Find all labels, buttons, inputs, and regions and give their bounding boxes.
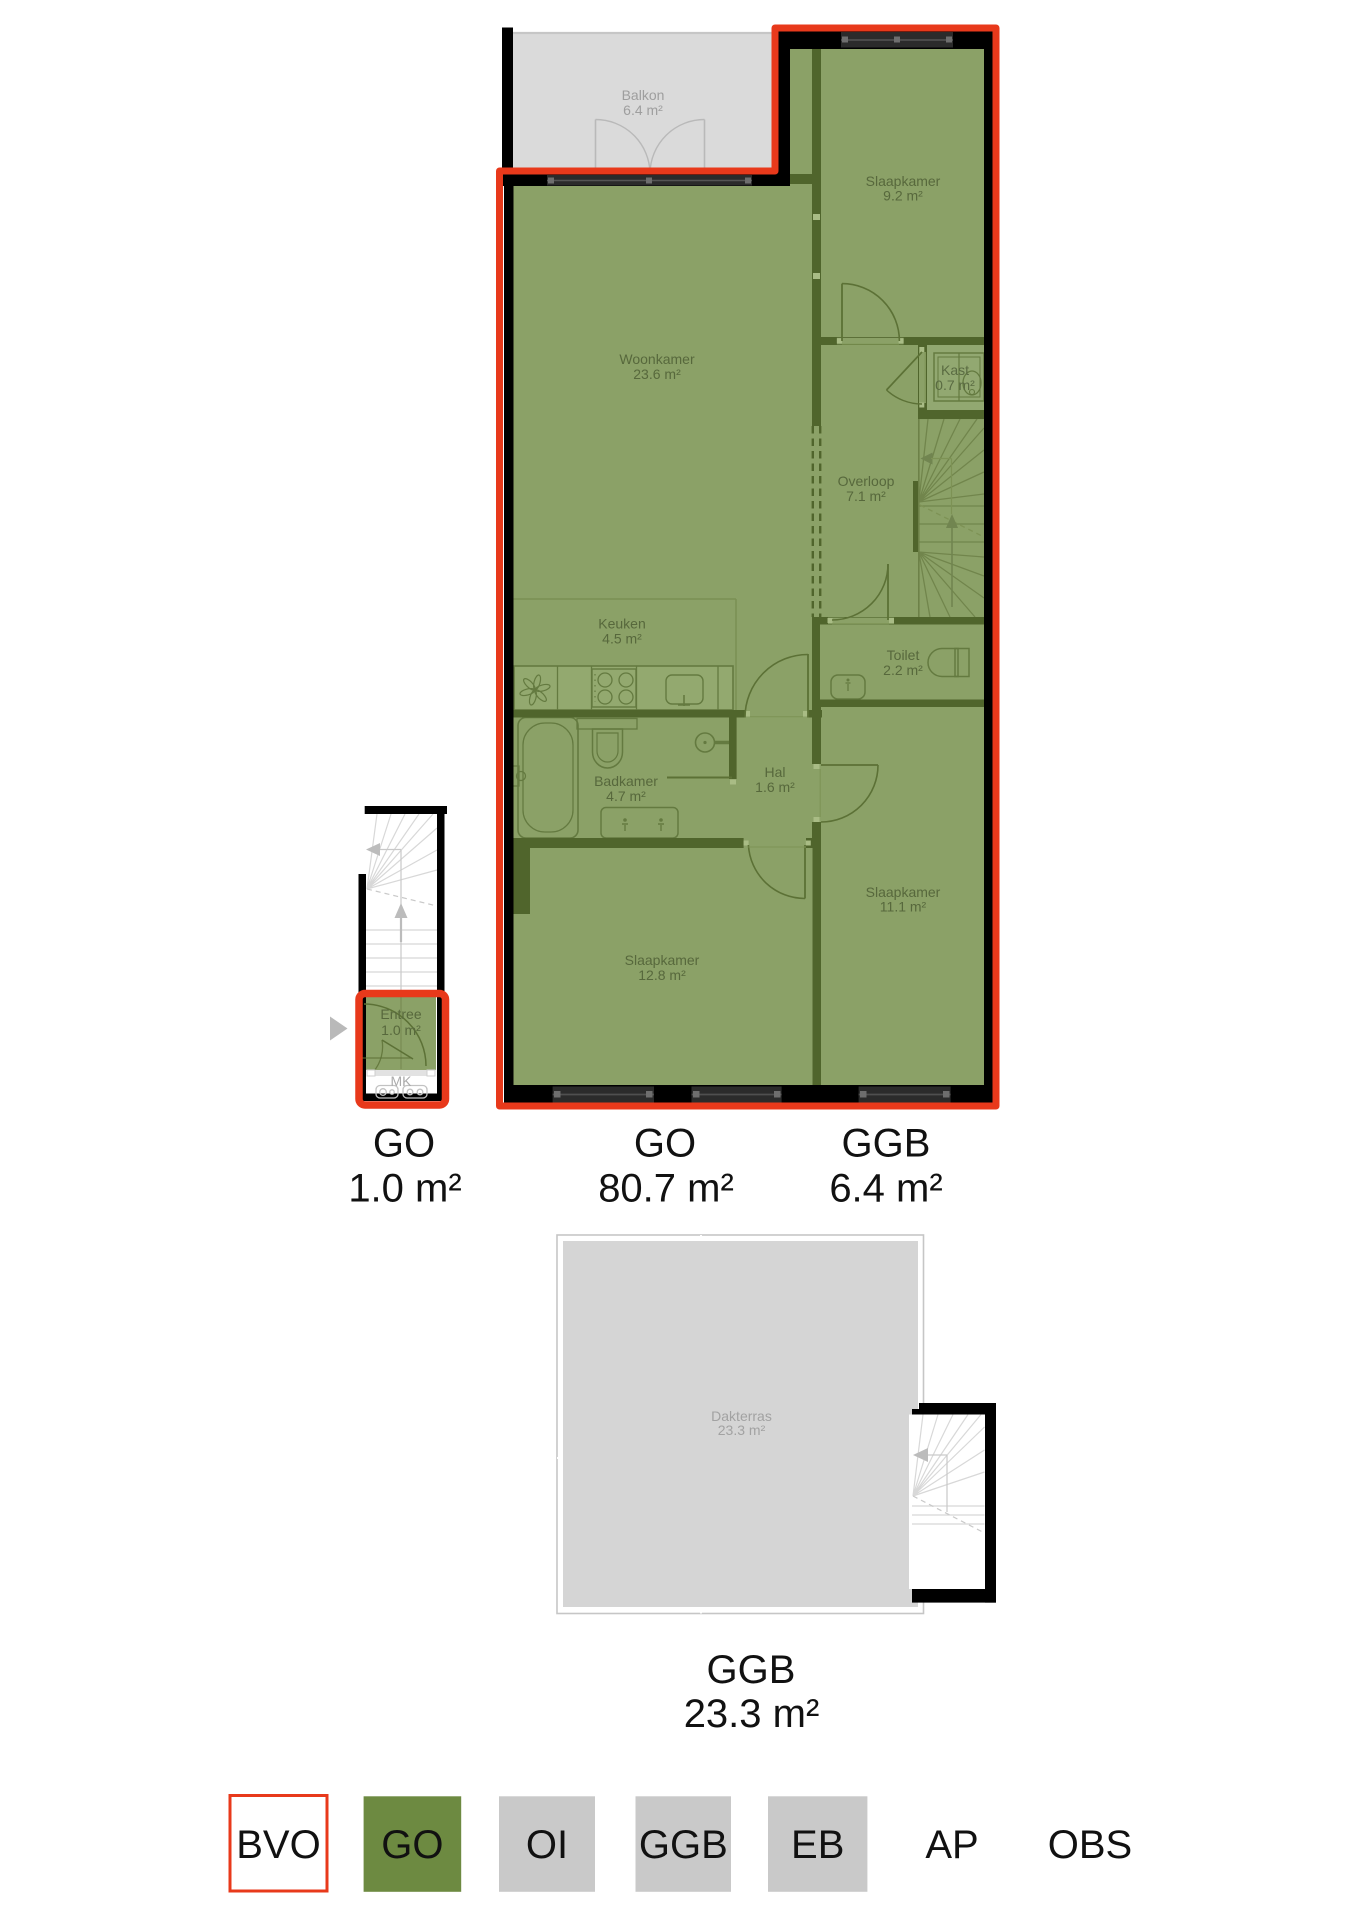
svg-text:1.6 m²: 1.6 m²	[755, 779, 795, 795]
svg-text:GO: GO	[373, 1122, 435, 1166]
svg-text:9.2 m²: 9.2 m²	[883, 188, 923, 204]
svg-text:6.4 m²: 6.4 m²	[829, 1167, 942, 1211]
svg-text:23.6 m²: 23.6 m²	[633, 366, 681, 382]
svg-text:Hal: Hal	[764, 764, 785, 780]
svg-text:GGB: GGB	[707, 1648, 796, 1692]
svg-text:GO: GO	[381, 1823, 443, 1867]
svg-text:12.8 m²: 12.8 m²	[638, 967, 686, 983]
svg-text:0.7 m²: 0.7 m²	[935, 377, 975, 393]
svg-text:Balkon: Balkon	[622, 87, 665, 103]
svg-text:OI: OI	[526, 1823, 568, 1867]
svg-text:EB: EB	[791, 1823, 844, 1867]
svg-text:23.3 m²: 23.3 m²	[718, 1422, 766, 1438]
svg-text:BVO: BVO	[236, 1823, 320, 1867]
svg-text:Entree: Entree	[380, 1006, 421, 1022]
svg-text:Toilet: Toilet	[887, 647, 920, 663]
svg-text:OBS: OBS	[1048, 1823, 1132, 1867]
svg-text:GGB: GGB	[639, 1823, 728, 1867]
svg-text:6.4 m²: 6.4 m²	[623, 102, 663, 118]
svg-text:Kast: Kast	[941, 362, 969, 378]
svg-text:11.1 m²: 11.1 m²	[880, 899, 927, 915]
svg-text:7.1 m²: 7.1 m²	[846, 488, 886, 504]
svg-text:Keuken: Keuken	[598, 616, 645, 632]
svg-text:GO: GO	[634, 1122, 696, 1166]
svg-text:Woonkamer: Woonkamer	[619, 351, 695, 367]
svg-text:4.5 m²: 4.5 m²	[602, 631, 642, 647]
svg-text:GGB: GGB	[842, 1122, 931, 1166]
svg-text:80.7 m²: 80.7 m²	[598, 1167, 734, 1211]
svg-text:MK: MK	[391, 1073, 413, 1089]
svg-text:Overloop: Overloop	[838, 473, 895, 489]
svg-text:AP: AP	[925, 1823, 978, 1867]
svg-text:Badkamer: Badkamer	[594, 773, 658, 789]
svg-text:1.0 m²: 1.0 m²	[381, 1022, 421, 1038]
svg-text:4.7 m²: 4.7 m²	[606, 788, 646, 804]
svg-text:1.0 m²: 1.0 m²	[348, 1167, 461, 1211]
svg-text:Slaapkamer: Slaapkamer	[625, 952, 700, 968]
svg-text:2.2 m²: 2.2 m²	[883, 662, 923, 678]
svg-text:23.3 m²: 23.3 m²	[684, 1692, 820, 1736]
